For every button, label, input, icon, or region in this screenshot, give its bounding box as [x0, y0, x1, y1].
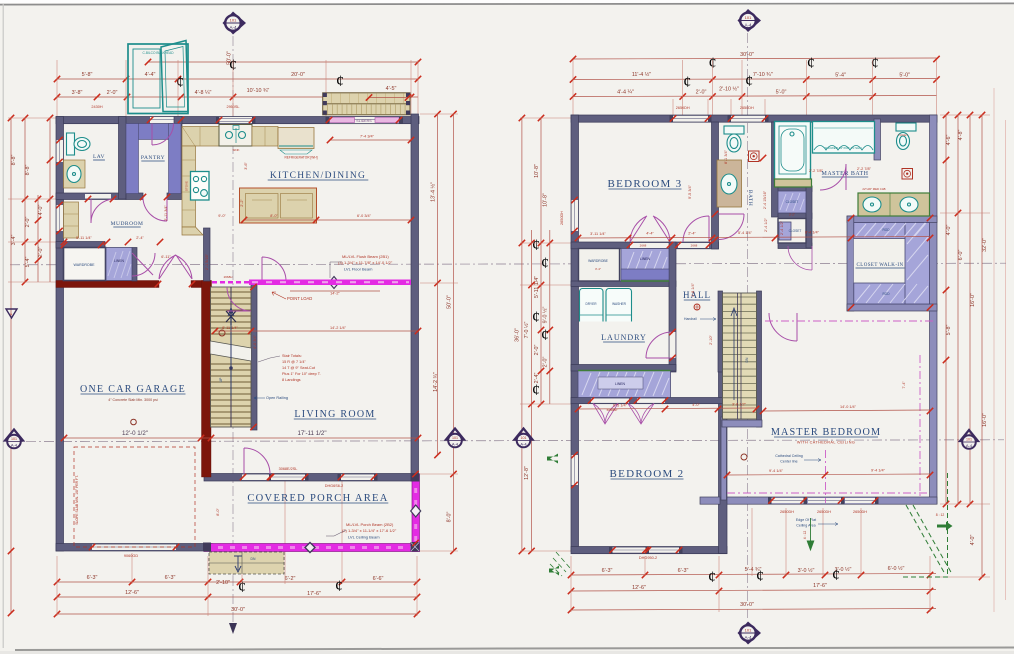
svg-text:2430H: 2430H	[91, 105, 102, 109]
svg-text:CLOSET: CLOSET	[786, 200, 799, 204]
svg-text:8'-0": 8'-0"	[447, 512, 453, 523]
svg-text:5'-8": 5'-8"	[82, 72, 93, 78]
svg-text:16'-0": 16'-0"	[970, 293, 976, 307]
svg-text:SLIDERS: SLIDERS	[356, 119, 372, 123]
svg-text:14 T @ 9" Seat-Cut: 14 T @ 9" Seat-Cut	[282, 366, 316, 370]
svg-text:10'-8": 10'-8"	[543, 193, 549, 207]
svg-text:16'-0": 16'-0"	[982, 413, 988, 427]
svg-text:ROD: ROD	[882, 228, 890, 232]
svg-text:101: 101	[11, 437, 17, 441]
svg-text:Stair Totals:: Stair Totals:	[282, 354, 302, 358]
svg-text:2'-1 5/16": 2'-1 5/16"	[205, 253, 209, 270]
svg-text:6'-0 ½": 6'-0 ½"	[888, 565, 905, 572]
svg-text:ONE CAR GARAGE: ONE CAR GARAGE	[80, 384, 186, 395]
svg-text:101: 101	[230, 18, 237, 23]
svg-text:3'-11 1/4": 3'-11 1/4"	[590, 232, 606, 236]
svg-text:Edge Of Flat: Edge Of Flat	[796, 518, 816, 522]
svg-text:LINEN: LINEN	[640, 257, 651, 261]
svg-text:Ceiling Area: Ceiling Area	[796, 524, 815, 528]
svg-text:30'-0": 30'-0"	[740, 52, 754, 58]
svg-text:DHG6S6-2: DHG6S6-2	[325, 484, 344, 488]
svg-text:101: 101	[966, 438, 972, 442]
svg-text:REFRIGERATOR [WH]: REFRIGERATOR [WH]	[285, 156, 318, 160]
svg-text:3'-0 ½": 3'-0 ½"	[798, 567, 815, 574]
svg-text:BEDROOM 2: BEDROOM 2	[610, 468, 685, 480]
svg-text:A-4: A-4	[229, 25, 237, 30]
svg-text:6'-0 3/4": 6'-0 3/4"	[357, 214, 372, 218]
svg-text:KITCHEN/DINING: KITCHEN/DINING	[270, 171, 366, 181]
svg-text:¢: ¢	[708, 569, 716, 586]
svg-text:5'-4": 5'-4"	[835, 73, 846, 79]
svg-text:¢: ¢	[745, 73, 753, 90]
svg-text:6'-3": 6'-3"	[165, 575, 176, 581]
svg-text:(2) 1-3/4" x 11-1/4" x 17'-6 1: (2) 1-3/4" x 11-1/4" x 17'-6 1/2"	[342, 528, 397, 533]
svg-text:A-4: A-4	[966, 443, 973, 448]
svg-text:32'-0": 32'-0"	[982, 238, 988, 252]
svg-text:5'-4 1/4": 5'-4 1/4"	[738, 231, 753, 235]
svg-text:2'-0": 2'-0"	[696, 90, 707, 96]
svg-text:2'-10": 2'-10"	[709, 335, 713, 345]
svg-text:¢: ¢	[683, 74, 691, 91]
svg-text:2650DH: 2650DH	[560, 211, 564, 225]
svg-text:2668: 2668	[640, 244, 647, 248]
svg-text:12'-6": 12'-6"	[632, 585, 646, 591]
svg-text:9060GD: 9060GD	[124, 554, 138, 558]
svg-text:2'-4 1/2": 2'-4 1/2"	[764, 217, 768, 232]
svg-text:BATH: BATH	[747, 190, 753, 206]
svg-text:¢: ¢	[807, 55, 815, 72]
svg-text:¢: ¢	[532, 237, 540, 254]
svg-text:LAUNDRY: LAUNDRY	[601, 333, 647, 342]
svg-text:8'-0": 8'-0"	[216, 508, 220, 516]
svg-text:4 : 12: 4 : 12	[803, 531, 807, 540]
svg-text:A-4: A-4	[520, 442, 527, 447]
svg-text:9'-0 ½": 9'-0 ½"	[542, 307, 549, 324]
svg-text:¢: ¢	[532, 309, 540, 326]
svg-text:2668: 2668	[691, 244, 698, 248]
svg-text:A-4: A-4	[744, 23, 752, 28]
svg-text:6'-3": 6'-3"	[678, 568, 689, 574]
svg-text:3'-4": 3'-4"	[595, 267, 601, 271]
svg-text:8'-8": 8'-8"	[25, 165, 31, 176]
svg-text:8'-0": 8'-0"	[270, 214, 278, 218]
svg-text:2'-4 1/2": 2'-4 1/2"	[780, 220, 784, 235]
svg-text:14'-2": 14'-2"	[330, 292, 340, 296]
svg-text:4'-4 ¼": 4'-4 ¼"	[617, 90, 634, 96]
svg-text:LINEN: LINEN	[615, 382, 626, 386]
svg-text:DHG950-2: DHG950-2	[639, 556, 657, 560]
svg-text:9'-4 1/4": 9'-4 1/4"	[769, 469, 784, 473]
svg-text:Open Railing: Open Railing	[266, 396, 288, 400]
svg-text:ML/LVL Porch Beam (2B2): ML/LVL Porch Beam (2B2)	[346, 522, 394, 527]
svg-text:101: 101	[521, 436, 527, 440]
svg-text:3'-6": 3'-6"	[244, 162, 248, 170]
svg-text:4'-0": 4'-0"	[692, 403, 700, 407]
svg-text:3068E/2SL: 3068E/2SL	[279, 467, 298, 471]
svg-text:4'-4": 4'-4"	[646, 232, 654, 236]
svg-text:4'-0": 4'-0"	[946, 225, 952, 236]
svg-text:ML/LVL Flush Beam (2B1): ML/LVL Flush Beam (2B1)	[342, 254, 389, 259]
svg-text:2'-11 3/4": 2'-11 3/4"	[164, 204, 168, 220]
svg-text:6'-5 1/4": 6'-5 1/4"	[613, 404, 628, 408]
svg-text:2650DH: 2650DH	[817, 510, 831, 514]
svg-text:2668H: 2668H	[224, 275, 233, 279]
svg-text:5'-0": 5'-0"	[776, 90, 787, 96]
svg-text:5'-4": 5'-4"	[25, 257, 31, 268]
svg-text:¢: ¢	[336, 73, 344, 90]
svg-text:101: 101	[745, 628, 752, 633]
svg-text:13'-4 ½": 13'-4 ½"	[430, 182, 437, 202]
svg-text:2'-2": 2'-2"	[789, 213, 795, 217]
svg-text:5'-0": 5'-0"	[899, 73, 910, 79]
svg-text:UP: UP	[219, 377, 223, 382]
svg-text:9'-0": 9'-0"	[218, 214, 226, 218]
svg-text:22"x30" MED CAB: 22"x30" MED CAB	[862, 187, 885, 191]
svg-text:14'-2 1/4": 14'-2 1/4"	[330, 326, 347, 330]
svg-text:4'-4": 4'-4"	[145, 72, 156, 78]
svg-text:A-4: A-4	[11, 443, 18, 448]
svg-text:2'-2 7/8": 2'-2 7/8"	[857, 167, 872, 171]
svg-text:6'-6": 6'-6"	[373, 576, 384, 582]
svg-text:4'-0": 4'-0"	[970, 535, 976, 546]
svg-text:MUDROOM: MUDROOM	[111, 221, 144, 227]
svg-text:5'-11 1/4": 5'-11 1/4"	[76, 236, 92, 240]
svg-text:2'-0": 2'-0"	[534, 345, 540, 356]
svg-text:8 : 12: 8 : 12	[936, 513, 945, 517]
svg-text:LAV: LAV	[93, 154, 105, 160]
svg-text:A-4: A-4	[452, 442, 459, 447]
svg-text:3'-4": 3'-4"	[11, 235, 17, 246]
svg-text:PANTRY: PANTRY	[141, 155, 165, 161]
svg-text:DN: DN	[251, 557, 256, 561]
svg-text:2'-4 15/16": 2'-4 15/16"	[763, 190, 767, 209]
svg-text:LIVING ROOM: LIVING ROOM	[294, 409, 375, 420]
svg-text:4'-5": 4'-5"	[386, 86, 397, 92]
svg-text:10'-8": 10'-8"	[534, 164, 540, 178]
svg-text:8'-11 1/4": 8'-11 1/4"	[222, 326, 238, 330]
svg-text:30'-0": 30'-0"	[740, 602, 754, 608]
svg-text:101: 101	[745, 15, 752, 20]
svg-text:20'-0": 20'-0"	[291, 72, 305, 78]
svg-text:A: A	[10, 312, 12, 316]
svg-text:SINK: SINK	[232, 148, 239, 152]
svg-text:50'-0": 50'-0"	[447, 295, 453, 309]
svg-text:ROD: ROD	[882, 292, 890, 296]
svg-text:9'-5 3/4": 9'-5 3/4"	[688, 184, 692, 199]
svg-text:SLOPE SLAB MIN. 1/8" PER FT.: SLOPE SLAB MIN. 1/8" PER FT.	[75, 475, 79, 524]
svg-text:2'-0": 2'-0"	[38, 247, 44, 258]
svg-text:14'-2 ¾": 14'-2 ¾"	[433, 372, 439, 392]
svg-text:12'-6": 12'-6"	[125, 590, 139, 596]
svg-text:6080BP: 6080BP	[607, 408, 618, 412]
svg-text:WARDROBE: WARDROBE	[73, 263, 95, 267]
svg-text:Center line: Center line	[780, 460, 797, 464]
svg-text:6'-3": 6'-3"	[602, 568, 613, 574]
svg-text:8'-1 3/4": 8'-1 3/4"	[724, 149, 728, 164]
svg-text:11'-4 ½": 11'-4 ½"	[632, 71, 651, 78]
svg-text:7'-10 ¾": 7'-10 ¾"	[753, 72, 773, 78]
svg-text:¢: ¢	[541, 327, 549, 344]
svg-text:12'-0 1/2": 12'-0 1/2"	[122, 430, 148, 437]
svg-text:4'-0": 4'-0"	[38, 205, 44, 216]
svg-text:STOVE: STOVE	[185, 181, 189, 191]
svg-text:3'-8 1/2": 3'-8 1/2"	[732, 403, 747, 407]
svg-text:A-4: A-4	[744, 635, 752, 640]
svg-text:9'-4 1/4": 9'-4 1/4"	[871, 469, 886, 473]
svg-text:2650DH: 2650DH	[780, 510, 794, 514]
svg-text:¢: ¢	[756, 568, 764, 585]
svg-text:2'-0": 2'-0"	[25, 217, 31, 228]
svg-text:2'-10": 2'-10"	[216, 580, 230, 586]
svg-text:4'-8": 4'-8"	[958, 130, 964, 141]
svg-text:5'-8": 5'-8"	[946, 325, 952, 336]
svg-text:(3) 1-3/4" x 11-7/8" x 14'-0 1: (3) 1-3/4" x 11-7/8" x 14'-0 1/2"	[338, 260, 393, 265]
svg-text:8 Landings: 8 Landings	[282, 378, 301, 382]
svg-text:3'-8": 3'-8"	[72, 90, 83, 96]
svg-text:7'-4": 7'-4"	[902, 381, 906, 389]
svg-text:¢: ¢	[832, 567, 840, 584]
svg-text:COVERED PORCH AREA: COVERED PORCH AREA	[247, 493, 388, 504]
svg-text:6'-3": 6'-3"	[87, 575, 98, 581]
svg-text:DN: DN	[745, 357, 749, 362]
svg-text:7'-4 3/4": 7'-4 3/4"	[360, 135, 375, 139]
svg-text:WARDROBE: WARDROBE	[588, 259, 609, 263]
svg-text:C-BILCO BULKHEAD: C-BILCO BULKHEAD	[143, 51, 175, 55]
svg-text:17'-11 1/2": 17'-11 1/2"	[297, 430, 326, 437]
svg-text:Handrail: Handrail	[684, 317, 697, 321]
svg-text:4'-8 ¼": 4'-8 ¼"	[195, 90, 212, 96]
svg-text:4'-0 3/4": 4'-0 3/4"	[253, 334, 257, 349]
svg-text:MASTER BEDROOM: MASTER BEDROOM	[771, 427, 881, 438]
svg-text:Plus 1" For 10" deep T.: Plus 1" For 10" deep T.	[282, 372, 321, 376]
svg-text:POINT LOAD: POINT LOAD	[287, 296, 312, 301]
svg-text:LINEN: LINEN	[114, 259, 125, 263]
svg-text:101: 101	[452, 436, 458, 440]
svg-text:WASHER: WASHER	[612, 302, 627, 306]
svg-text:2650DH: 2650DH	[853, 510, 867, 514]
svg-text:14'-0 1/4": 14'-0 1/4"	[840, 405, 857, 409]
svg-text:HALL: HALL	[683, 290, 711, 300]
svg-text:8'-8": 8'-8"	[11, 155, 17, 166]
svg-text:36'-0": 36'-0"	[515, 328, 521, 342]
svg-text:2'-4": 2'-4"	[688, 232, 696, 236]
svg-text:SHOWER 32"X60" 4'0 SHH: SHOWER 32"X60" 4'0 SHH	[824, 146, 861, 150]
svg-text:15 R @ 7 1/4": 15 R @ 7 1/4"	[282, 360, 306, 364]
svg-text:¢: ¢	[532, 382, 540, 399]
svg-text:4" Concrete Slab Min. 3000 psi: 4" Concrete Slab Min. 3000 psi	[108, 398, 158, 402]
svg-text:2'-2": 2'-2"	[240, 199, 244, 207]
svg-text:17'-6": 17'-6"	[307, 591, 321, 597]
svg-text:¢: ¢	[176, 74, 184, 91]
svg-text:6'-11": 6'-11"	[161, 255, 171, 259]
svg-text:2'-0": 2'-0"	[107, 90, 118, 96]
svg-text:¢: ¢	[541, 255, 549, 272]
svg-text:2'-0": 2'-0"	[543, 357, 549, 368]
svg-text:12'-8": 12'-8"	[524, 466, 530, 480]
svg-text:6'-2": 6'-2"	[285, 576, 296, 582]
svg-text:DRYER: DRYER	[585, 302, 597, 306]
svg-text:¢: ¢	[871, 55, 879, 72]
svg-text:5'-11 1/4": 5'-11 1/4"	[534, 276, 540, 298]
svg-text:6'-0": 6'-0"	[958, 250, 964, 261]
svg-text:30'-0": 30'-0"	[231, 607, 245, 613]
svg-text:2'-10 ½": 2'-10 ½"	[719, 86, 739, 93]
svg-text:BEDROOM 3: BEDROOM 3	[608, 178, 683, 190]
svg-text:4'-6": 4'-6"	[946, 135, 952, 146]
svg-text:4'-8 1/4": 4'-8 1/4"	[691, 282, 695, 297]
svg-text:CLOSET: CLOSET	[789, 229, 802, 233]
svg-text:7'-0 ½": 7'-0 ½"	[523, 322, 530, 339]
svg-text:17'-6": 17'-6"	[813, 583, 827, 589]
svg-text:2'-2 7/8": 2'-2 7/8"	[809, 169, 824, 173]
svg-text:LVL Ceiling Beam: LVL Ceiling Beam	[348, 535, 380, 540]
svg-text:CLOSET WALK-IN: CLOSET WALK-IN	[857, 263, 904, 268]
svg-text:TOILET: TOILET	[898, 133, 908, 137]
svg-text:2'-4": 2'-4"	[136, 236, 144, 240]
svg-text:LVL Floor Beam: LVL Floor Beam	[344, 267, 373, 272]
svg-text:WITH CATHEDRAL CEILING: WITH CATHEDRAL CEILING	[797, 441, 855, 445]
svg-text:10'-10 ¾": 10'-10 ¾"	[247, 88, 270, 94]
svg-text:8'-4 1/4": 8'-4 1/4"	[805, 231, 820, 235]
svg-text:Cathedral Ceiling: Cathedral Ceiling	[775, 454, 803, 458]
